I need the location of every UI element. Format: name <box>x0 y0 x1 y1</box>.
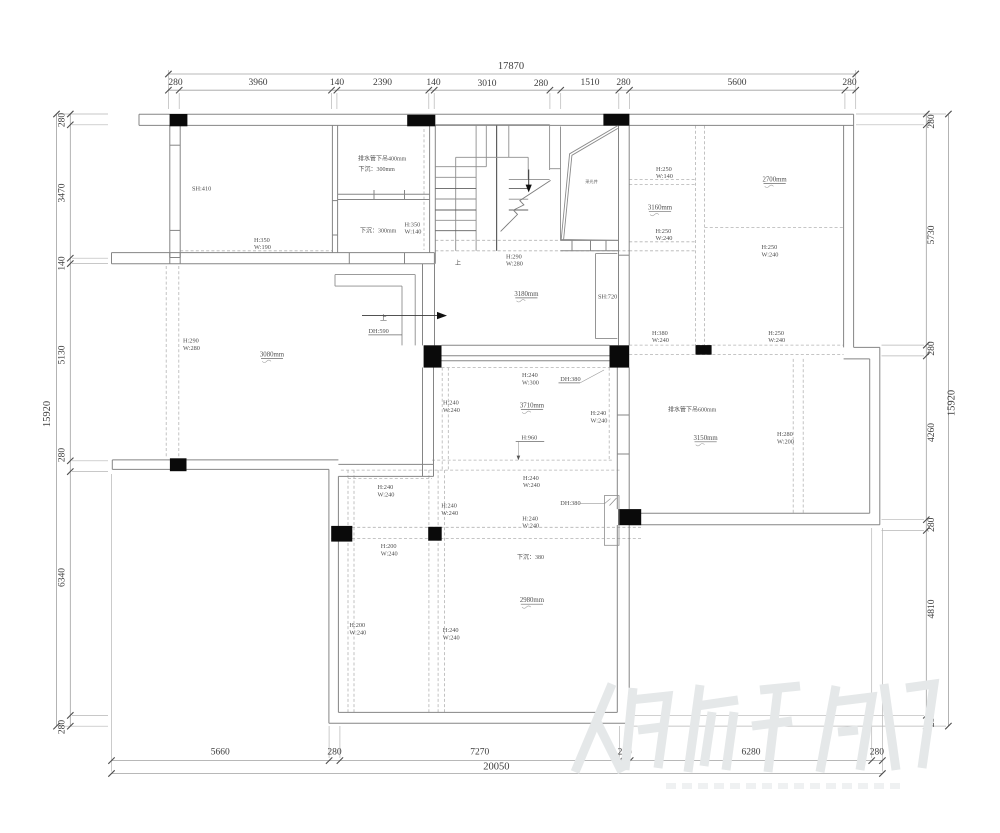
svg-text:W:240: W:240 <box>443 407 460 414</box>
svg-text:5600: 5600 <box>728 78 747 88</box>
svg-text:W:240: W:240 <box>522 523 539 530</box>
svg-text:140: 140 <box>330 78 345 88</box>
svg-text:H:960: H:960 <box>522 434 538 441</box>
svg-text:H:380: H:380 <box>652 330 668 337</box>
svg-text:2980mm: 2980mm <box>520 597 545 604</box>
svg-text:下沉：380: 下沉：380 <box>517 553 544 561</box>
svg-text:2390: 2390 <box>373 78 392 88</box>
svg-text:H:250: H:250 <box>656 166 672 173</box>
svg-text:3710mm: 3710mm <box>520 402 545 409</box>
svg-text:280: 280 <box>58 448 68 463</box>
svg-text:3180mm: 3180mm <box>514 291 539 298</box>
svg-text:3080mm: 3080mm <box>260 351 285 358</box>
svg-text:W:240: W:240 <box>762 251 779 258</box>
svg-text:下沉：300mm: 下沉：300mm <box>360 227 397 235</box>
svg-text:排水管下吊400mm: 排水管下吊400mm <box>358 154 407 162</box>
svg-text:H:250: H:250 <box>768 330 784 337</box>
svg-text:280: 280 <box>927 341 937 356</box>
svg-text:H:240: H:240 <box>443 400 459 407</box>
svg-text:3010: 3010 <box>478 79 497 89</box>
svg-text:采光井: 采光井 <box>585 178 598 185</box>
svg-text:DH:380: DH:380 <box>560 376 580 383</box>
svg-text:15920: 15920 <box>42 401 53 427</box>
svg-text:H:290: H:290 <box>183 338 199 345</box>
svg-text:3960: 3960 <box>249 78 268 88</box>
svg-text:H:240: H:240 <box>522 372 538 379</box>
svg-text:W:240: W:240 <box>378 492 395 499</box>
svg-text:上: 上 <box>380 313 387 322</box>
svg-text:DH:380: DH:380 <box>560 500 580 507</box>
svg-text:排水管下吊600mm: 排水管下吊600mm <box>668 405 717 413</box>
svg-text:280: 280 <box>327 748 342 758</box>
svg-text:2700mm: 2700mm <box>763 176 788 183</box>
svg-text:W:240: W:240 <box>652 337 669 344</box>
svg-text:W:240: W:240 <box>443 634 460 641</box>
svg-text:6340: 6340 <box>58 568 68 587</box>
svg-text:H:250: H:250 <box>656 228 672 235</box>
svg-text:W:240: W:240 <box>768 337 785 344</box>
svg-text:W:240: W:240 <box>349 629 366 636</box>
svg-text:H:290: H:290 <box>506 253 522 260</box>
svg-text:280: 280 <box>842 78 857 88</box>
svg-text:W:240: W:240 <box>441 510 458 517</box>
svg-text:H:200: H:200 <box>381 543 397 550</box>
svg-text:15920: 15920 <box>947 390 958 416</box>
svg-text:W:140: W:140 <box>405 229 422 236</box>
svg-text:W:140: W:140 <box>656 173 673 180</box>
svg-text:17870: 17870 <box>498 61 524 72</box>
svg-text:W:190: W:190 <box>254 244 271 251</box>
svg-text:280: 280 <box>616 78 631 88</box>
svg-text:W:240: W:240 <box>523 482 540 489</box>
svg-text:W:300: W:300 <box>522 379 539 386</box>
svg-text:140: 140 <box>426 78 441 88</box>
svg-text:SH:720: SH:720 <box>598 293 617 300</box>
svg-text:H:240: H:240 <box>441 503 457 510</box>
svg-text:W:240: W:240 <box>381 550 398 557</box>
svg-text:W:240: W:240 <box>591 418 608 425</box>
svg-text:280: 280 <box>58 113 68 128</box>
svg-text:H:350: H:350 <box>405 221 421 228</box>
svg-text:7270: 7270 <box>470 748 489 758</box>
svg-text:280: 280 <box>168 78 183 88</box>
svg-text:H:240: H:240 <box>523 475 539 482</box>
svg-text:4260: 4260 <box>927 423 937 442</box>
svg-text:下沉：300mm: 下沉：300mm <box>359 165 396 173</box>
svg-text:W:240: W:240 <box>656 235 673 242</box>
svg-text:280: 280 <box>534 79 549 89</box>
svg-text:20050: 20050 <box>483 762 509 773</box>
svg-text:3470: 3470 <box>58 183 68 202</box>
svg-text:140: 140 <box>58 256 68 271</box>
svg-text:W:280: W:280 <box>183 345 200 352</box>
svg-text:SH:410: SH:410 <box>192 186 211 193</box>
svg-text:H:240: H:240 <box>591 410 607 417</box>
svg-text:W:280: W:280 <box>506 261 523 268</box>
svg-text:5130: 5130 <box>58 345 68 364</box>
svg-text:280: 280 <box>927 114 937 129</box>
svg-text:1510: 1510 <box>581 78 600 88</box>
svg-text:3160mm: 3160mm <box>648 205 673 212</box>
svg-text:H:240: H:240 <box>522 515 538 522</box>
svg-text:上: 上 <box>455 259 461 267</box>
svg-text:5660: 5660 <box>211 748 230 758</box>
svg-text:280: 280 <box>58 720 68 735</box>
svg-text:H:250: H:250 <box>762 244 778 251</box>
svg-text:5730: 5730 <box>927 225 937 244</box>
svg-text:280: 280 <box>927 517 937 532</box>
svg-text:280: 280 <box>870 748 885 758</box>
svg-text:3150mm: 3150mm <box>694 435 719 442</box>
svg-text:DH:590: DH:590 <box>369 328 389 335</box>
svg-text:H:280: H:280 <box>777 431 793 438</box>
svg-text:H:350: H:350 <box>254 237 270 244</box>
svg-text:W:200: W:200 <box>777 438 794 445</box>
svg-text:H:240: H:240 <box>378 484 394 491</box>
svg-text:6280: 6280 <box>742 748 761 758</box>
svg-text:H:240: H:240 <box>443 627 459 634</box>
svg-text:4810: 4810 <box>927 599 937 618</box>
svg-text:H:200: H:200 <box>349 622 365 629</box>
